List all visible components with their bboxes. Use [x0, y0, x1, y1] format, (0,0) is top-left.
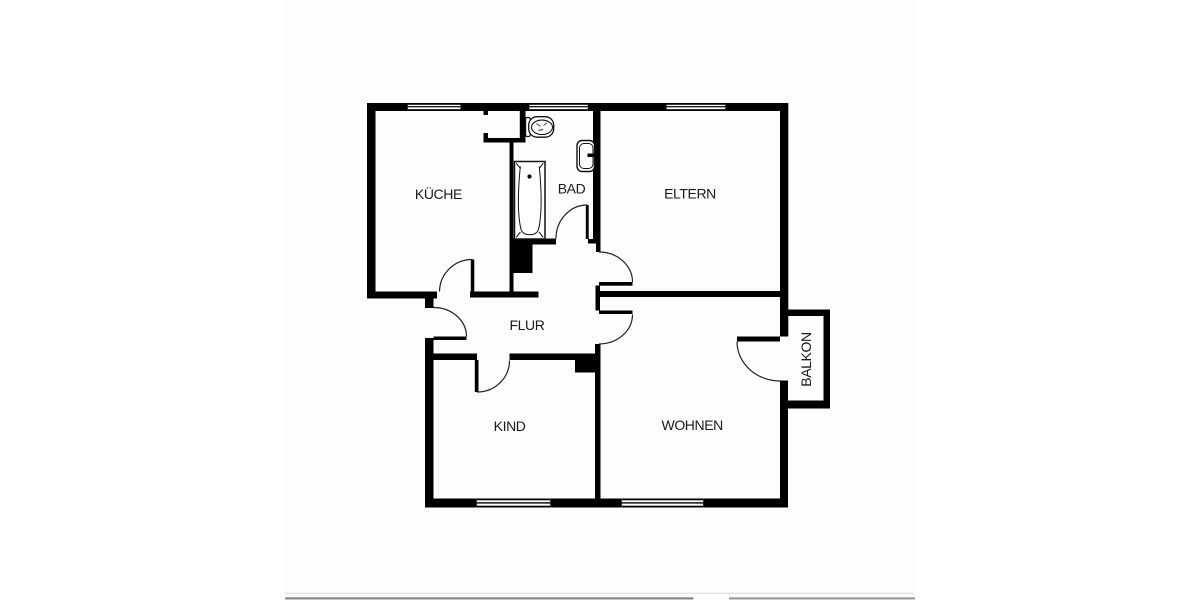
svg-text:KIND: KIND: [494, 418, 526, 434]
svg-text:BAD: BAD: [558, 181, 586, 197]
svg-text:WOHNEN: WOHNEN: [662, 417, 723, 433]
svg-text:FLUR: FLUR: [510, 317, 545, 333]
svg-text:ELTERN: ELTERN: [664, 186, 716, 202]
svg-text:BALKON: BALKON: [798, 332, 814, 386]
svg-text:KÜCHE: KÜCHE: [415, 185, 462, 202]
